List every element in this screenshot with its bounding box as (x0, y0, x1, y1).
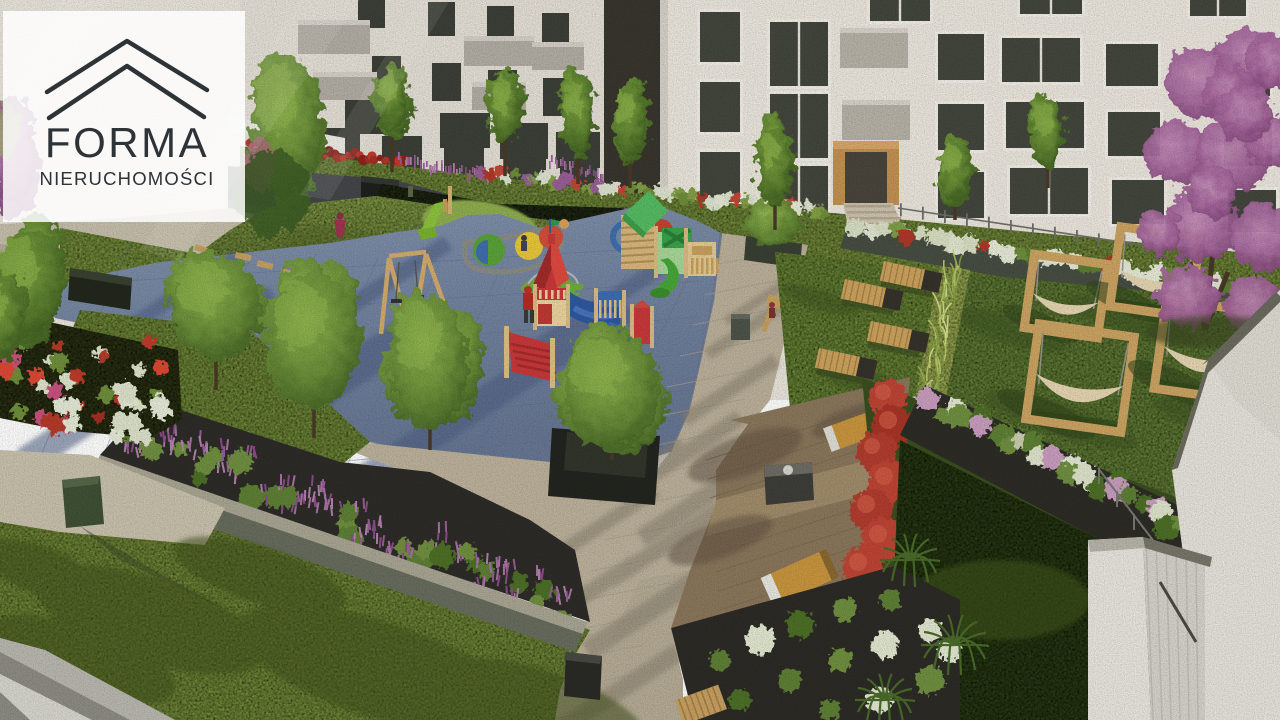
svg-text:NIERUCHOMOŚCI: NIERUCHOMOŚCI (40, 168, 215, 189)
svg-text:FORMA: FORMA (45, 119, 209, 166)
